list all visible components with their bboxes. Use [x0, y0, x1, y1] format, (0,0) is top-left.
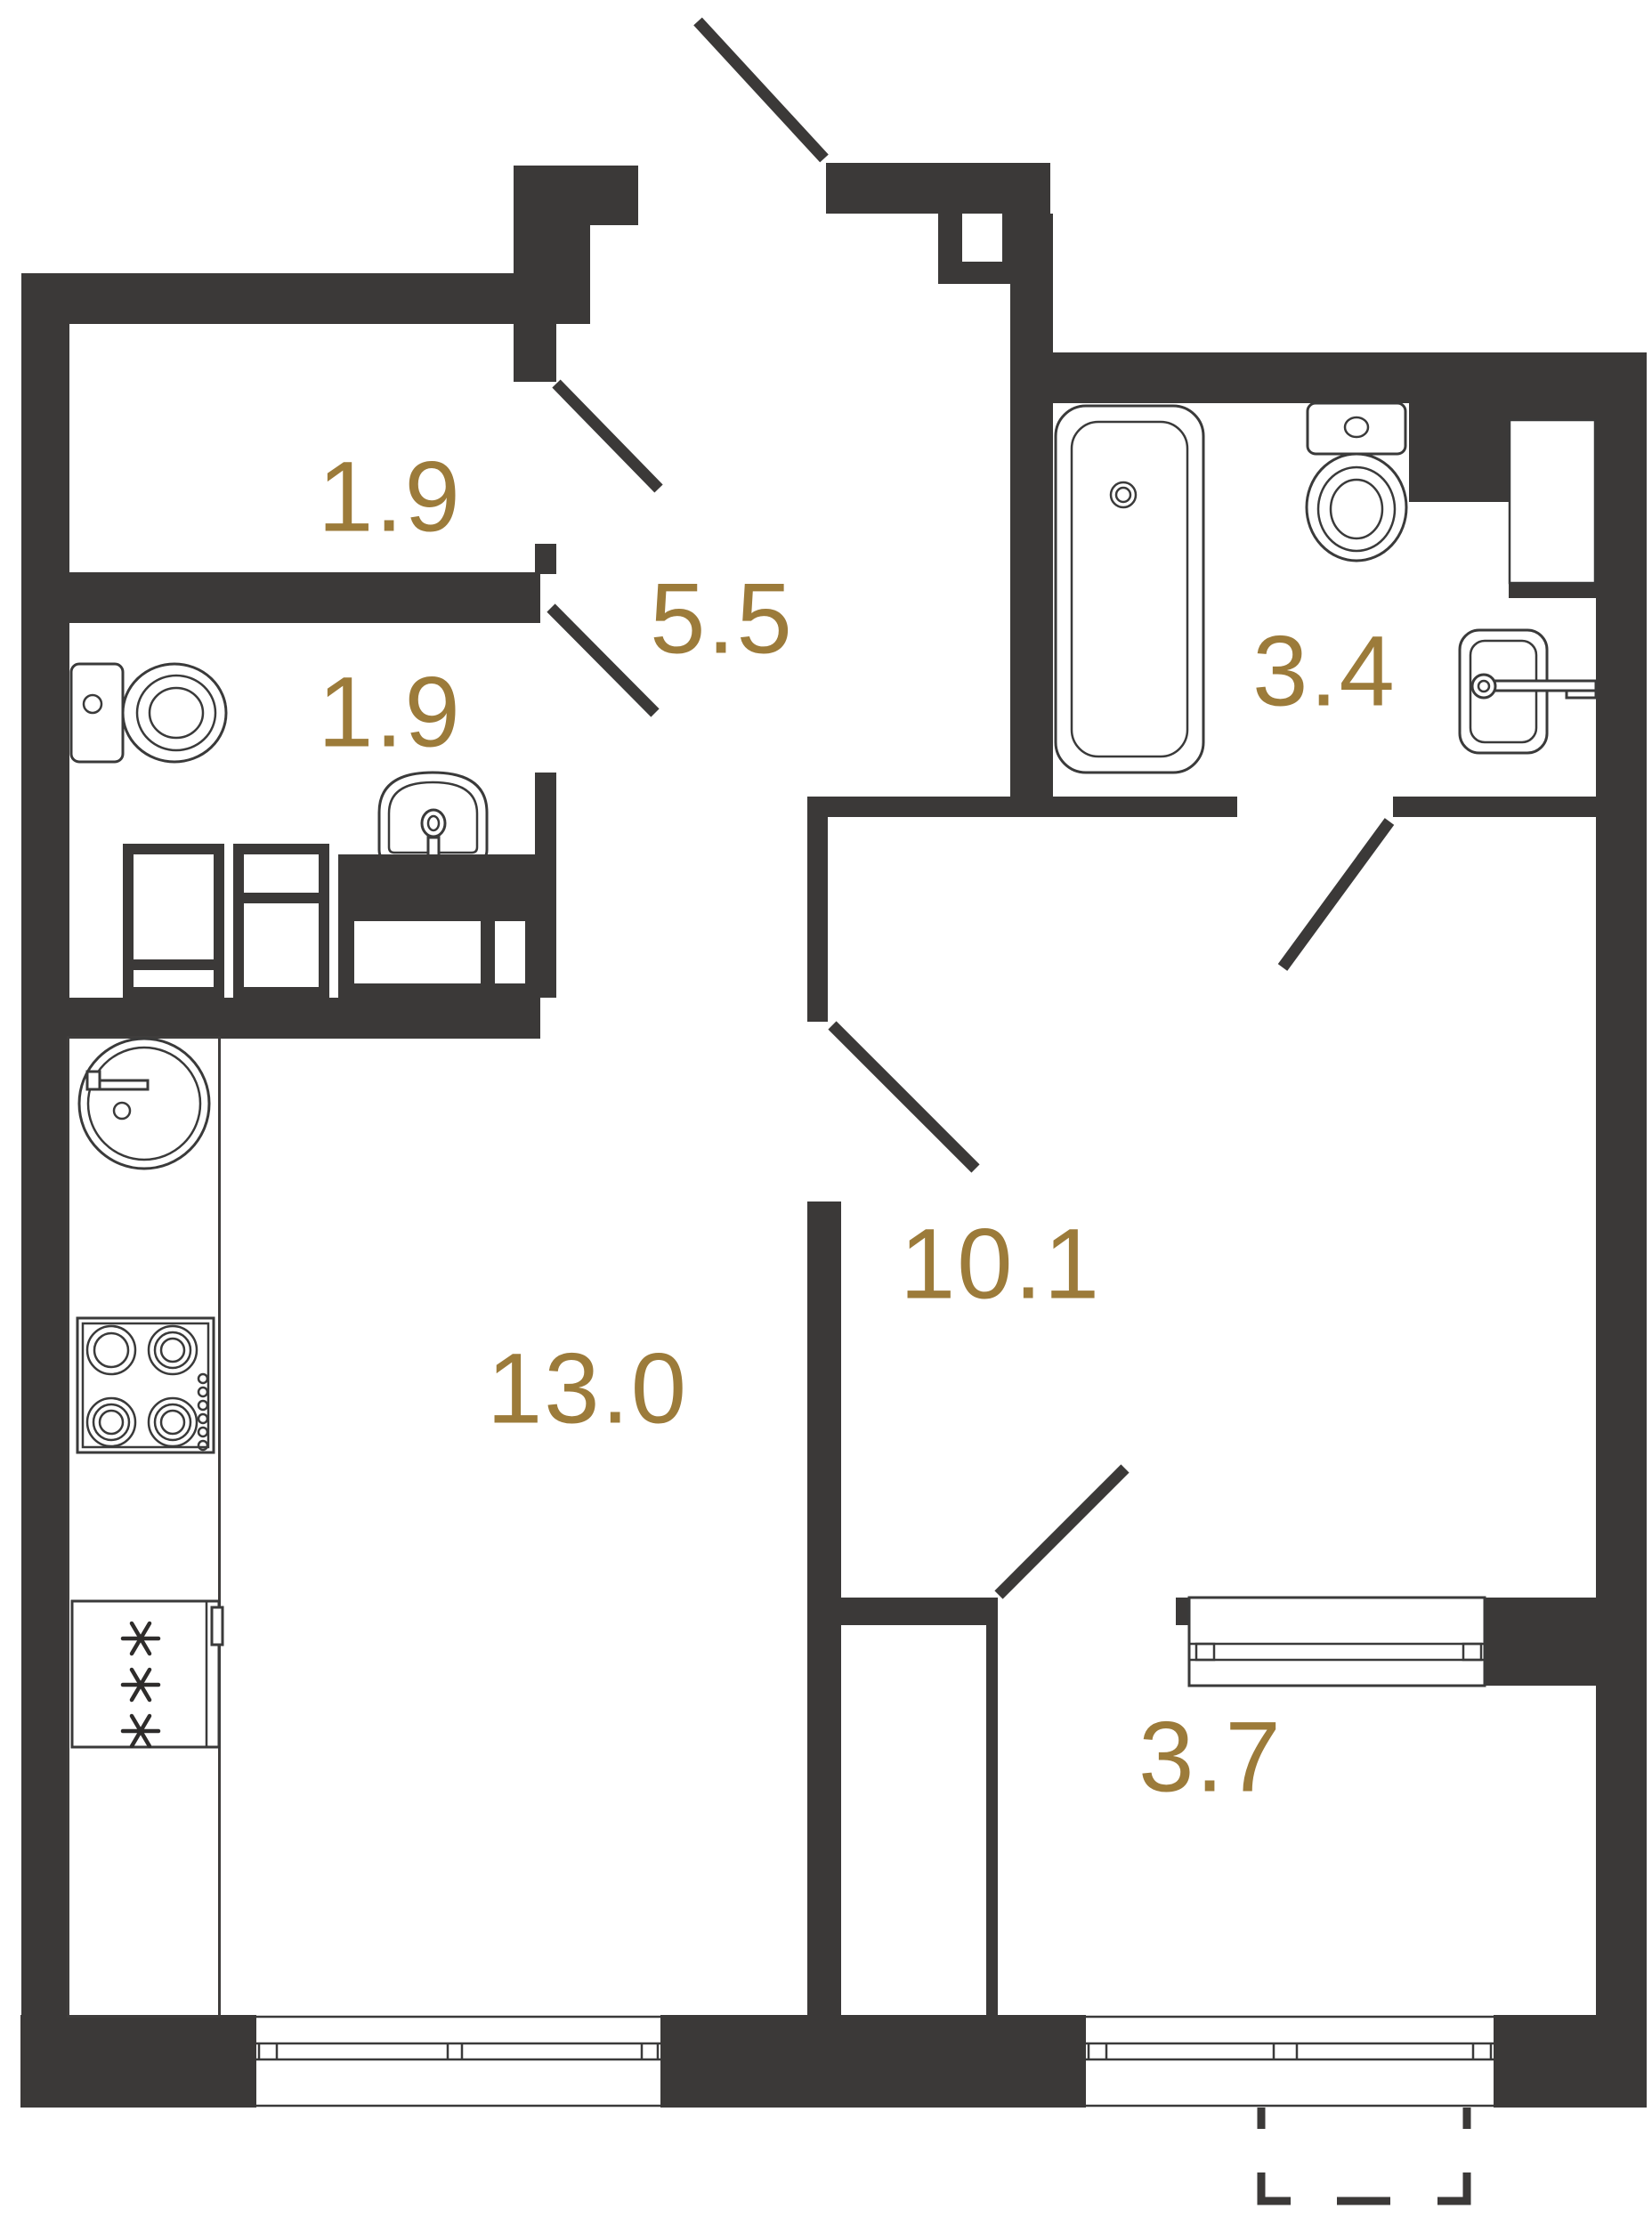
room-label-wc: 1.9: [318, 655, 462, 770]
wardrobe-icon: [1189, 1598, 1485, 1686]
room-label-storage-top: 1.9: [318, 440, 462, 554]
window-kitchen-icon: [256, 2015, 660, 2108]
hall-door-swing: [832, 1025, 976, 1169]
stove-icon: [77, 1318, 214, 1452]
room-label-room37: 3.7: [1138, 1700, 1283, 1815]
fridge-freezer-icon: [72, 1601, 223, 1747]
room-label-hall: 10.1: [900, 1207, 1101, 1322]
wc-cabinets-icon: [123, 844, 540, 998]
kitchen-sink-icon: [79, 1039, 209, 1169]
window-room37-icon: [1086, 2015, 1494, 2108]
wc-door-swing: [551, 608, 655, 713]
room-label-kitchen-living: 13.0: [487, 1331, 688, 1446]
washbasin-wc-icon: [379, 773, 487, 869]
niche-shelf: [1510, 420, 1595, 583]
balcony-outline-icon: [1261, 2108, 1467, 2201]
room-label-hallway: 5.5: [650, 562, 794, 676]
bathroom-door-swing: [1283, 821, 1389, 967]
storage-top-door-swing: [556, 384, 659, 489]
floor-plan: 1.9 5.5 1.9 3.4 13.0 10.1 3.7: [0, 0, 1652, 2225]
room37-door-swing: [999, 1468, 1125, 1595]
bathtub-icon: [1056, 406, 1203, 773]
toilet-wc-icon: [71, 664, 226, 762]
entry-door-swing: [698, 21, 824, 158]
toilet-bathroom-icon: [1307, 403, 1406, 561]
room-label-bathroom: 3.4: [1252, 614, 1397, 729]
washbasin-bathroom-icon: [1460, 630, 1596, 753]
fixtures-layer: [0, 0, 1652, 2225]
